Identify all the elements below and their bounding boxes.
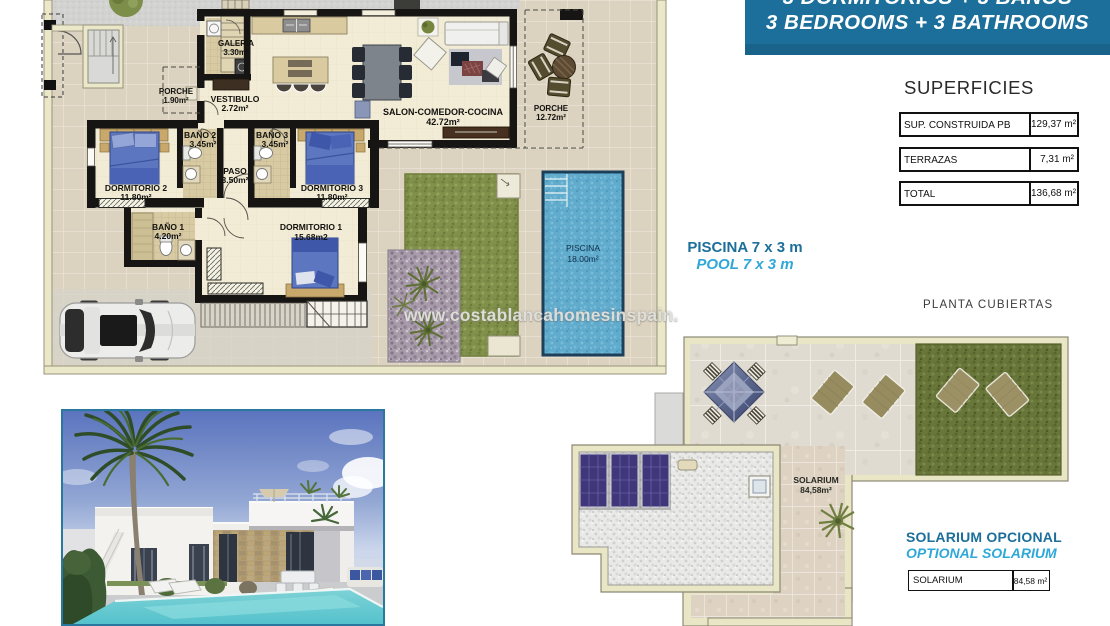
- svg-text:84,58m²: 84,58m²: [800, 485, 832, 495]
- svg-text:12.72m²: 12.72m²: [536, 113, 566, 122]
- svg-text:3.45m²: 3.45m²: [262, 139, 289, 149]
- svg-text:GALERIA: GALERIA: [218, 39, 254, 48]
- svg-text:PORCHE: PORCHE: [159, 87, 194, 96]
- svg-text:4.20m²: 4.20m²: [155, 231, 182, 241]
- svg-text:DORMITORIO 1: DORMITORIO 1: [280, 222, 342, 232]
- svg-text:PORCHE: PORCHE: [534, 104, 569, 113]
- svg-text:3.50m²: 3.50m²: [222, 175, 249, 185]
- svg-text:SOLARIUM: SOLARIUM: [793, 475, 838, 485]
- svg-text:15.68m2: 15.68m2: [294, 232, 328, 242]
- svg-text:11.80m²: 11.80m²: [120, 192, 151, 202]
- svg-text:3.45m²: 3.45m²: [190, 139, 217, 149]
- svg-text:PISCINA: PISCINA: [566, 243, 600, 253]
- svg-text:1.90m²: 1.90m²: [163, 96, 189, 105]
- svg-text:2.72m²: 2.72m²: [222, 103, 249, 113]
- svg-text:3.30m²: 3.30m²: [223, 48, 249, 57]
- svg-text:18.00m²: 18.00m²: [567, 254, 598, 264]
- svg-text:SALON-COMEDOR-COCINA: SALON-COMEDOR-COCINA: [383, 107, 503, 117]
- svg-text:11.80m²: 11.80m²: [316, 192, 347, 202]
- svg-text:42.72m²: 42.72m²: [426, 117, 460, 127]
